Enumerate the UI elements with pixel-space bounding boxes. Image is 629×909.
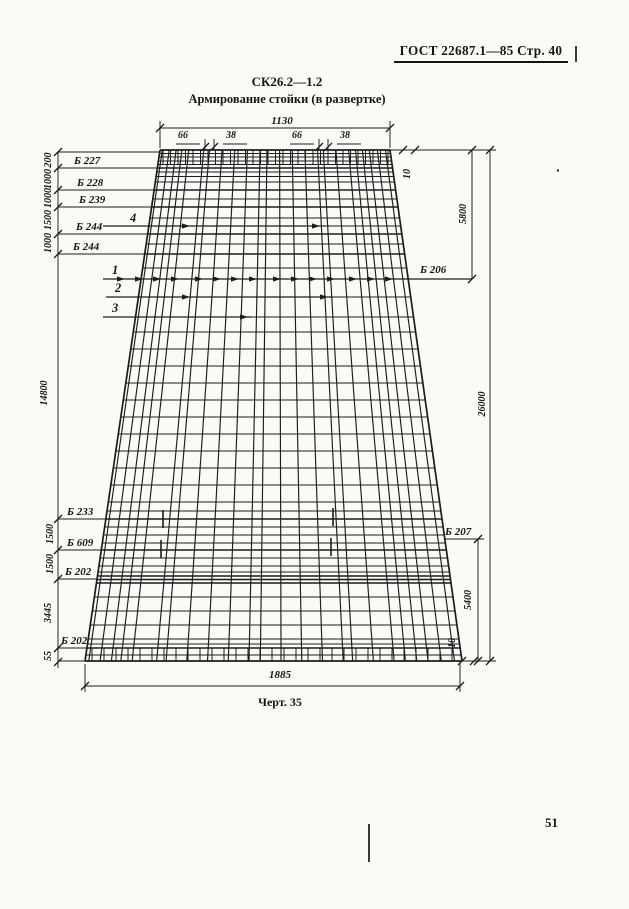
rebar-diagram-svg bbox=[0, 0, 629, 909]
dim-sub-66-b: 66 bbox=[292, 130, 302, 142]
bar-label-b228: Б 228 bbox=[77, 177, 103, 189]
dim-right-5400: 5400 bbox=[463, 578, 475, 622]
dim-right-10-bottom: 10 bbox=[447, 621, 459, 665]
scan-artifact-dash bbox=[575, 46, 577, 62]
bar-label-b202-a: Б 202 bbox=[65, 566, 91, 578]
dim-right-10-top: 10 bbox=[402, 152, 414, 196]
page-header: ГОСТ 22687.1—85 Стр. 40 bbox=[394, 43, 568, 63]
dim-sub-66-a: 66 bbox=[178, 130, 188, 142]
bar-label-b609: Б 609 bbox=[67, 537, 93, 549]
figure-caption: Черт. 35 bbox=[240, 695, 320, 710]
bar-label-b202-b: Б 202 bbox=[61, 635, 87, 647]
callout-4: 4 bbox=[130, 212, 136, 224]
dim-right-26000: 26000 bbox=[477, 382, 489, 426]
dim-right-5800: 5800 bbox=[458, 192, 470, 236]
callout-1: 1 bbox=[112, 264, 118, 276]
bar-label-b227: Б 227 bbox=[74, 155, 100, 167]
dim-sub-38-a: 38 bbox=[226, 130, 236, 142]
drawing-title: Армирование стойки (в развертке) bbox=[137, 92, 437, 107]
page-number: 51 bbox=[545, 815, 558, 831]
dim-sub-38-b: 38 bbox=[340, 130, 350, 142]
scan-artifact-dot bbox=[557, 169, 559, 172]
bar-label-b207: Б 207 bbox=[445, 526, 471, 538]
dim-bottom-width: 1885 bbox=[260, 669, 300, 681]
bar-label-b206: Б 206 bbox=[420, 264, 446, 276]
document-page: ГОСТ 22687.1—85 Стр. 40 СК26.2—1.2 Армир… bbox=[0, 0, 629, 909]
bar-label-b239: Б 239 bbox=[79, 194, 105, 206]
scan-artifact-line bbox=[368, 824, 370, 862]
callout-2: 2 bbox=[115, 282, 121, 294]
bar-label-b244-b: Б 244 bbox=[73, 241, 99, 253]
dim-left-1000-c: 1000 bbox=[43, 221, 55, 265]
drawing-code: СК26.2—1.2 bbox=[187, 74, 387, 90]
dim-top-width: 1130 bbox=[262, 115, 302, 127]
dim-left-1500-c: 1500 bbox=[45, 542, 57, 586]
callout-3: 3 bbox=[112, 302, 118, 314]
dim-left-3445: 3445 bbox=[43, 591, 55, 635]
bar-label-b244-a: Б 244 bbox=[76, 221, 102, 233]
dim-left-14800: 14800 bbox=[39, 371, 51, 415]
dim-left-55: 55 bbox=[43, 634, 55, 678]
bar-label-b233: Б 233 bbox=[67, 506, 93, 518]
